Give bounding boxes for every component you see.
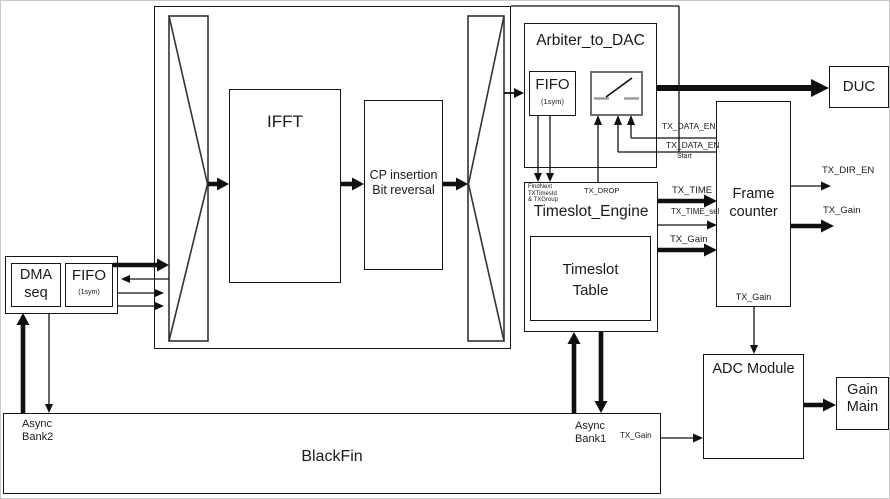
dma-to-funnel-arrows xyxy=(113,259,169,311)
tx-drop-arrow xyxy=(594,115,602,182)
tx-dir-en-label: TX_DIR_EN xyxy=(822,166,874,177)
dma-fifo-sub: (1sym) xyxy=(65,289,113,297)
tx-data-en-label-1: TX_DATA_EN xyxy=(662,122,716,132)
tx-time-sel-arrow xyxy=(658,221,717,230)
tx-dir-en-arrow xyxy=(791,182,831,191)
tx-data-en-label-2: TX_DATA_EN xyxy=(666,141,720,151)
timeslot-table-label: TimeslotTable xyxy=(530,259,651,301)
engine-note: FindNextTXTimesId& TXGroup xyxy=(528,184,558,204)
blackfin-label: BlackFin xyxy=(3,448,661,466)
async-bank2-label: AsyncBank2 xyxy=(22,418,53,444)
dac-to-duc-arrow xyxy=(657,79,829,97)
wires-layer xyxy=(1,1,890,499)
arbiter-fifo-label: FIFO xyxy=(529,76,576,93)
arbiter-title: Arbiter_to_DAC xyxy=(524,32,657,50)
blackfin-to-adc-arrow xyxy=(661,434,703,443)
tx-drop-label: TX_DROP xyxy=(584,187,619,196)
tx-gain-blackfin-label: TX_Gain xyxy=(620,431,652,440)
engine-to-blackfin-arrow xyxy=(595,332,608,413)
timeslot-engine-title: Timeslot_Engine xyxy=(524,203,658,221)
duc-label: DUC xyxy=(829,78,889,95)
ifft-label: IFFT xyxy=(229,112,341,132)
tx-time-label: TX_TIME xyxy=(672,186,712,197)
tx-gain-engine-label: TX_Gain xyxy=(670,235,708,246)
tx-gain-frame-arrow xyxy=(791,220,834,233)
cp-insertion-label: CP insertionBit reversal xyxy=(364,168,443,198)
right-funnel-shape xyxy=(468,16,504,341)
gain-main-label: GainMain xyxy=(836,382,889,416)
adc-module-label: ADC Module xyxy=(703,361,804,378)
block-diagram: IFFT CP insertionBit reversal Arbiter_to… xyxy=(0,0,890,499)
tx-time-sel-label: TX_TIME_sel xyxy=(671,207,719,216)
frame-to-adc-arrow xyxy=(750,307,758,354)
cp-to-funnel-arrow xyxy=(443,178,468,191)
ifft-to-cp-arrow xyxy=(341,178,364,191)
dma-fifo-label: FIFO xyxy=(65,267,113,284)
async-bank1-label: AsyncBank1 xyxy=(575,420,606,446)
fifo-to-engine-arrows xyxy=(534,116,554,182)
funnel-to-arbiter-arrow xyxy=(504,88,524,98)
frame-counter-bottom-signal: TX_Gain xyxy=(716,292,791,302)
blackfin-to-dma-arrow xyxy=(17,313,30,413)
frame-counter-label: Framecounter xyxy=(716,186,791,221)
tx-gain-frame-label: TX_Gain xyxy=(823,206,861,217)
arbiter-fifo-sub: (1sym) xyxy=(529,98,576,107)
adc-to-gainmain-arrow xyxy=(804,399,836,412)
dma-to-blackfin-arrow xyxy=(45,314,53,413)
blackfin-to-engine-arrow xyxy=(568,332,581,413)
start-label: Start xyxy=(677,153,692,161)
left-funnel-shape xyxy=(169,16,208,341)
funnel-to-ifft-arrow xyxy=(208,178,229,191)
switch-icon xyxy=(594,78,639,99)
dma-seq-label: DMAseq xyxy=(11,266,61,302)
